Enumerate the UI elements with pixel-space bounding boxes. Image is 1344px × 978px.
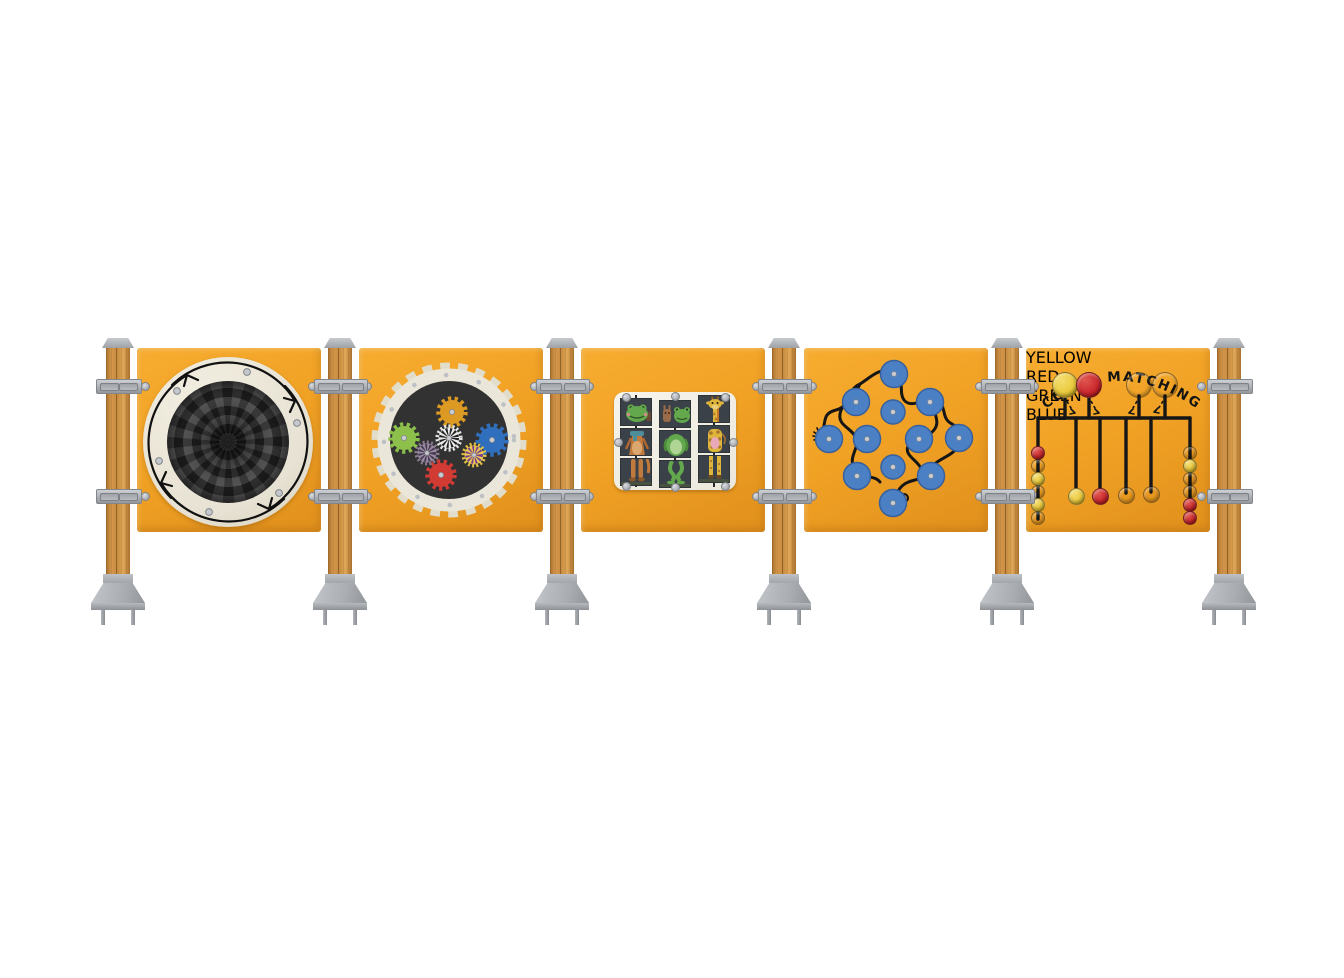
bead[interactable] bbox=[1183, 446, 1197, 460]
plate-bolt bbox=[721, 482, 730, 491]
post-bracket bbox=[536, 489, 590, 504]
plate-bolt bbox=[721, 393, 730, 402]
panel-mix-match bbox=[581, 348, 765, 532]
plate-bolt bbox=[671, 392, 680, 401]
maze-assembly bbox=[804, 348, 988, 532]
gear-pinwheel-purple[interactable] bbox=[416, 442, 438, 464]
tile-fox-body[interactable] bbox=[620, 428, 652, 456]
maze-knob[interactable] bbox=[881, 455, 905, 479]
maze-knob[interactable] bbox=[881, 361, 908, 388]
post-bracket bbox=[1207, 379, 1253, 394]
post-bracket bbox=[758, 489, 812, 504]
maze-knob[interactable] bbox=[881, 400, 905, 424]
maze-knobs bbox=[816, 361, 973, 517]
bead[interactable] bbox=[1031, 459, 1045, 473]
bead[interactable] bbox=[1031, 446, 1045, 460]
ground-anchor bbox=[535, 574, 589, 622]
bead[interactable] bbox=[1031, 511, 1045, 525]
post-bracket bbox=[314, 379, 368, 394]
spinner-arrows bbox=[137, 348, 321, 532]
hint-arrowheads bbox=[1070, 408, 1159, 414]
gear-pinwheel-yellow-purple[interactable] bbox=[463, 444, 485, 466]
panel-color-matching: COLOR MATCHING bbox=[1026, 348, 1210, 532]
play-panel-scene: COLOR MATCHING bbox=[0, 0, 1344, 978]
slider-knob[interactable] bbox=[1068, 488, 1085, 505]
ring-bolts bbox=[156, 369, 301, 516]
post-bracket bbox=[981, 489, 1035, 504]
ground-anchor bbox=[1202, 574, 1256, 622]
color-disc[interactable] bbox=[1052, 372, 1078, 398]
post-bracket bbox=[96, 489, 142, 504]
post-cap bbox=[324, 338, 356, 348]
gear-assembly bbox=[359, 348, 543, 532]
post-cap bbox=[546, 338, 578, 348]
track-lines bbox=[1038, 396, 1190, 519]
post-bracket bbox=[981, 379, 1035, 394]
ground-anchor bbox=[313, 574, 367, 622]
plate-bolt bbox=[729, 438, 738, 447]
hint-arrows bbox=[1067, 401, 1163, 413]
maze-knob[interactable] bbox=[880, 490, 907, 517]
bead[interactable] bbox=[1183, 485, 1197, 499]
color-disc[interactable] bbox=[1076, 372, 1102, 398]
maze-knob[interactable] bbox=[918, 463, 945, 490]
bead[interactable] bbox=[1183, 472, 1197, 486]
tile-frog-body[interactable] bbox=[659, 430, 691, 458]
bead[interactable] bbox=[1183, 459, 1197, 473]
post-cap bbox=[768, 338, 800, 348]
post-cap bbox=[102, 338, 134, 348]
maze-knob[interactable] bbox=[906, 426, 933, 453]
panel-spinner bbox=[137, 348, 321, 532]
post-bracket bbox=[1207, 489, 1253, 504]
bead[interactable] bbox=[1183, 511, 1197, 525]
maze-knob[interactable] bbox=[843, 389, 870, 416]
slider-knob[interactable] bbox=[1143, 486, 1160, 503]
color-disc[interactable] bbox=[1152, 372, 1178, 398]
maze-knob[interactable] bbox=[946, 425, 973, 452]
panel-maze bbox=[804, 348, 988, 532]
post-bracket bbox=[314, 489, 368, 504]
plate-bolt bbox=[622, 393, 631, 402]
tile-giraffe-body[interactable] bbox=[698, 425, 730, 453]
maze-knob[interactable] bbox=[844, 463, 871, 490]
plate-bolt bbox=[614, 438, 623, 447]
plate-bolt bbox=[671, 483, 680, 492]
post-cap bbox=[1213, 338, 1245, 348]
slider-knob[interactable] bbox=[1118, 487, 1135, 504]
tile-llama-frog-head[interactable] bbox=[659, 400, 691, 428]
ground-anchor bbox=[91, 574, 145, 622]
post-cap bbox=[991, 338, 1023, 348]
tile-giraffe-legs[interactable] bbox=[698, 455, 730, 483]
color-disc[interactable] bbox=[1126, 372, 1152, 398]
ground-anchor bbox=[980, 574, 1034, 622]
tile-frog-head[interactable] bbox=[620, 398, 652, 426]
post-bracket bbox=[536, 379, 590, 394]
slider-knob[interactable] bbox=[1092, 488, 1109, 505]
ground-anchor bbox=[757, 574, 811, 622]
maze-knob[interactable] bbox=[917, 389, 944, 416]
post-bracket bbox=[758, 379, 812, 394]
post-bracket bbox=[96, 379, 142, 394]
maze-knob[interactable] bbox=[816, 426, 843, 453]
bead[interactable] bbox=[1031, 472, 1045, 486]
plate-bolt bbox=[622, 482, 631, 491]
bead[interactable] bbox=[1183, 498, 1197, 512]
maze-knob[interactable] bbox=[854, 426, 881, 453]
panel-gears bbox=[359, 348, 543, 532]
